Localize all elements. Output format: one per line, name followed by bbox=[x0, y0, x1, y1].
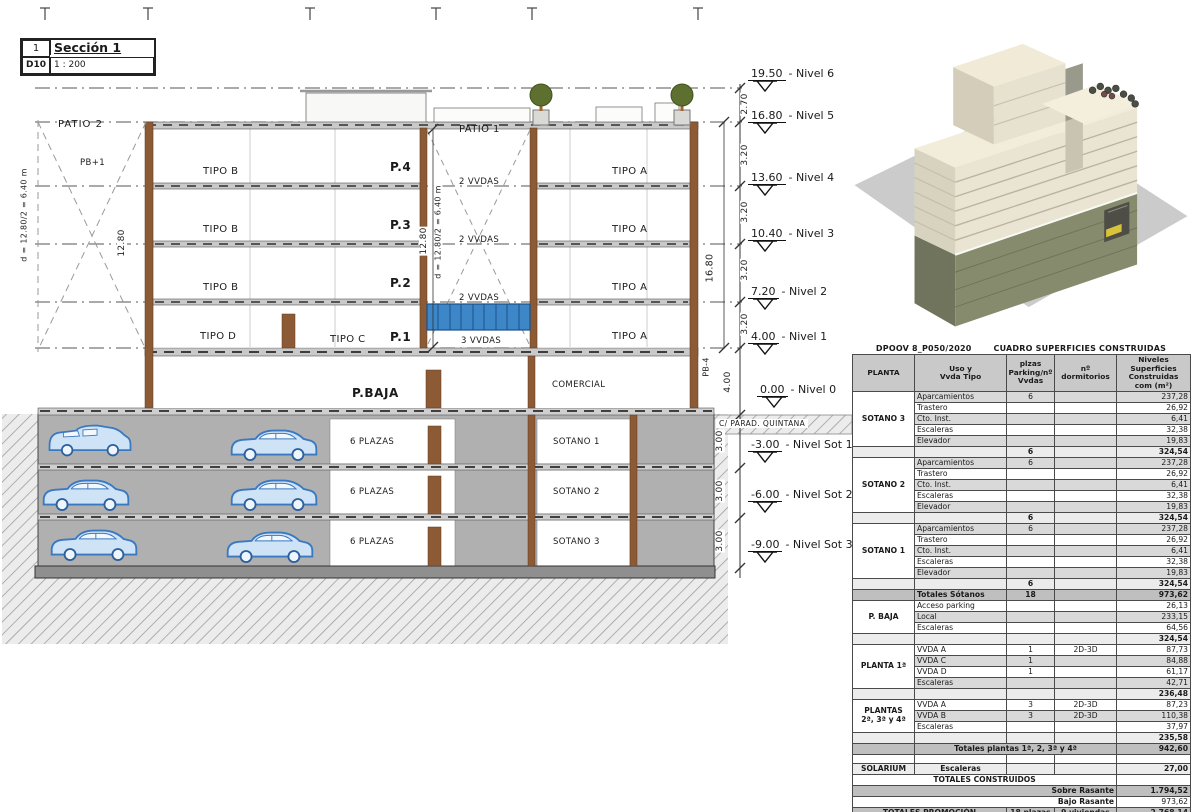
table-cell: Cto. Inst. bbox=[915, 480, 1007, 491]
table-cell: 84,88 bbox=[1117, 656, 1191, 667]
table-cell bbox=[853, 634, 915, 645]
table-cell bbox=[1007, 436, 1055, 447]
table-cell bbox=[853, 744, 915, 755]
table-title: CUADRO SUPERFICIES CONSTRUIDAS bbox=[994, 344, 1167, 353]
table-cell bbox=[1055, 491, 1117, 502]
benchmark-icon bbox=[752, 343, 778, 355]
pbaja-label: P.BAJA bbox=[352, 386, 399, 400]
level-marker: 4.00- Nivel 1 bbox=[748, 325, 827, 355]
table-cell: 324,54 bbox=[1117, 447, 1191, 458]
table-cell bbox=[1055, 590, 1117, 601]
table-cell: SOTANO 3 bbox=[853, 392, 915, 447]
table-cell: Escaleras bbox=[915, 491, 1007, 502]
table-cell: 6 bbox=[1007, 513, 1055, 524]
tipo-d-label: TIPO D bbox=[200, 331, 236, 342]
table-cell: Escaleras bbox=[915, 623, 1007, 634]
patio2-label: PATIO 2 bbox=[58, 119, 103, 130]
table-row: Totales plantas 1ª, 2, 3ª y 4ª942,60 bbox=[853, 744, 1191, 755]
tipo-a-label: TIPO A bbox=[612, 166, 647, 177]
table-cell bbox=[1007, 755, 1055, 764]
table-row bbox=[853, 755, 1191, 764]
table-cell: Aparcamientos bbox=[915, 524, 1007, 535]
comercial-label: COMERCIAL bbox=[552, 380, 605, 390]
column-header: PLANTA bbox=[853, 355, 915, 392]
table-row: Totales Sótanos18973,62 bbox=[853, 590, 1191, 601]
table-cell: 61,17 bbox=[1117, 667, 1191, 678]
dim-320: 3.20 bbox=[740, 200, 750, 223]
table-cell: Cto. Inst. bbox=[915, 414, 1007, 425]
level-marker: 19.50- Nivel 6 bbox=[748, 62, 834, 92]
table-cell: 3 bbox=[1007, 700, 1055, 711]
table-cell: 973,62 bbox=[1117, 590, 1191, 601]
table-cell: 110,38 bbox=[1117, 711, 1191, 722]
table-code: DPOOV 8_P050/2020 bbox=[876, 344, 972, 353]
dim-320: 3.20 bbox=[740, 258, 750, 281]
table-cell bbox=[1007, 502, 1055, 513]
table-cell: Escaleras bbox=[915, 425, 1007, 436]
table-cell: Acceso parking bbox=[915, 601, 1007, 612]
dim-d-mid: d = 12.80/2 = 6.40 m bbox=[434, 184, 443, 280]
table-cell bbox=[1055, 502, 1117, 513]
table-cell bbox=[1055, 733, 1117, 744]
table-cell: Totales plantas 1ª, 2, 3ª y 4ª bbox=[915, 744, 1117, 755]
table-cell: VVDA B bbox=[915, 711, 1007, 722]
table-row: SOLARIUMEscaleras27,00 bbox=[853, 764, 1191, 775]
table-cell bbox=[1055, 425, 1117, 436]
table-cell bbox=[915, 634, 1007, 645]
table-cell bbox=[1055, 513, 1117, 524]
dim-300: 3.00 bbox=[715, 529, 725, 552]
grid-ticks bbox=[40, 8, 703, 20]
level-marker: -6.00- Nivel Sot 2 bbox=[748, 483, 853, 513]
table-cell: TOTALES PROMOCIÓN bbox=[853, 808, 1007, 812]
table-row: 235,58 bbox=[853, 733, 1191, 744]
glazing-band bbox=[427, 304, 530, 330]
table-cell bbox=[1055, 634, 1117, 645]
level-marker: 13.60- Nivel 4 bbox=[748, 166, 834, 196]
table-cell: 42,71 bbox=[1117, 678, 1191, 689]
table-row: PLANTAS 2ª, 3ª y 4ªVVDA A32D-3D87,23 bbox=[853, 700, 1191, 711]
table-cell bbox=[1055, 458, 1117, 469]
p4-label: P.4 bbox=[390, 160, 411, 174]
p1-label: P.1 bbox=[390, 330, 411, 344]
level-marker: 0.00- Nivel 0 bbox=[757, 378, 836, 408]
table-cell: 2D-3D bbox=[1055, 711, 1117, 722]
table-cell: Aparcamientos bbox=[915, 392, 1007, 403]
table-cell bbox=[1007, 535, 1055, 546]
table-row: PLANTA 1ªVVDA A12D-3D87,73 bbox=[853, 645, 1191, 656]
table-cell: 1.794,52 bbox=[1117, 786, 1191, 797]
table-cell bbox=[1007, 733, 1055, 744]
penthouse bbox=[306, 93, 426, 122]
table-cell bbox=[1055, 447, 1117, 458]
table-cell bbox=[1055, 689, 1117, 700]
vvdas-label: 2 VVDAS bbox=[459, 293, 499, 303]
table-row: Bajo Rasante973,62 bbox=[853, 797, 1191, 808]
dim-300: 3.00 bbox=[715, 479, 725, 502]
table-cell bbox=[1055, 480, 1117, 491]
table-row: 324,54 bbox=[853, 634, 1191, 645]
benchmark-icon bbox=[761, 396, 787, 408]
table-cell bbox=[1055, 524, 1117, 535]
vvdas-label: 3 VVDAS bbox=[461, 336, 501, 346]
table-cell: 26,92 bbox=[1117, 535, 1191, 546]
level-marker: 16.80- Nivel 5 bbox=[748, 104, 834, 134]
table-cell: 18 plazas bbox=[1007, 808, 1055, 812]
table-cell bbox=[1055, 722, 1117, 733]
table-cell bbox=[1055, 436, 1117, 447]
table-cell bbox=[1007, 634, 1055, 645]
table-cell bbox=[1007, 623, 1055, 634]
table-cell: Local bbox=[915, 612, 1007, 623]
table-cell: 237,28 bbox=[1117, 392, 1191, 403]
dim-300: 3.00 bbox=[715, 429, 725, 452]
table-cell: 1 bbox=[1007, 667, 1055, 678]
table-cell bbox=[1117, 775, 1191, 786]
table-cell: Aparcamientos bbox=[915, 458, 1007, 469]
table-cell bbox=[915, 733, 1007, 744]
table-cell bbox=[1007, 568, 1055, 579]
p3-label: P.3 bbox=[390, 218, 411, 232]
table-cell: 2D-3D bbox=[1055, 700, 1117, 711]
table-cell: 19,83 bbox=[1117, 436, 1191, 447]
table-cell: 32,38 bbox=[1117, 557, 1191, 568]
table-cell: Cto. Inst. bbox=[915, 546, 1007, 557]
street-label: C/ PARAD. QUINTANA bbox=[716, 419, 808, 428]
level-marker: 10.40- Nivel 3 bbox=[748, 222, 834, 252]
column-header: plzas Parking/nº Vvdas bbox=[1007, 355, 1055, 392]
table-cell bbox=[1007, 612, 1055, 623]
pb1-label: PB+1 bbox=[80, 158, 105, 168]
table-cell: 324,54 bbox=[1117, 579, 1191, 590]
tipo-b-label: TIPO B bbox=[203, 282, 238, 293]
table-cell: VVDA D bbox=[915, 667, 1007, 678]
table-cell: 1 bbox=[1007, 645, 1055, 656]
areas-table-wrap: DPOOV 8_P050/2020 CUADRO SUPERFICIES CON… bbox=[852, 344, 1190, 812]
table-row: 6324,54 bbox=[853, 447, 1191, 458]
sotano1-label: SOTANO 1 bbox=[553, 437, 600, 447]
level-marker: -9.00- Nivel Sot 3 bbox=[748, 533, 853, 563]
roof-parapets bbox=[434, 103, 679, 122]
table-cell bbox=[853, 733, 915, 744]
table-cell: P. BAJA bbox=[853, 601, 915, 634]
table-cell bbox=[1055, 623, 1117, 634]
table-cell bbox=[1007, 601, 1055, 612]
table-cell: 26,92 bbox=[1117, 469, 1191, 480]
table-cell bbox=[1055, 568, 1117, 579]
table-row: 6324,54 bbox=[853, 579, 1191, 590]
drawing-scale: 1 : 200 bbox=[50, 57, 154, 74]
table-cell bbox=[853, 513, 915, 524]
table-cell: SOTANO 2 bbox=[853, 458, 915, 513]
table-row: TOTALES CONSTRUIDOS bbox=[853, 775, 1191, 786]
areas-table: PLANTAUso y Vvda Tipoplzas Parking/nº Vv… bbox=[852, 354, 1191, 812]
table-cell: PLANTAS 2ª, 3ª y 4ª bbox=[853, 700, 915, 733]
table-row: 236,48 bbox=[853, 689, 1191, 700]
benchmark-icon bbox=[752, 298, 778, 310]
tipo-a-label: TIPO A bbox=[612, 224, 647, 235]
table-cell bbox=[1007, 678, 1055, 689]
table-cell: 324,54 bbox=[1117, 634, 1191, 645]
table-cell bbox=[1007, 491, 1055, 502]
table-cell bbox=[853, 590, 915, 601]
table-cell: Elevador bbox=[915, 436, 1007, 447]
vvdas-label: 2 VVDAS bbox=[459, 177, 499, 187]
sotano2-label: SOTANO 2 bbox=[553, 487, 600, 497]
architectural-sheet: 1 Sección 1 D10 1 : 200 PATIO 2 PB+1 TIP… bbox=[0, 0, 1200, 812]
dim-1280: 12.80 bbox=[117, 228, 127, 257]
table-cell: 26,92 bbox=[1117, 403, 1191, 414]
table-row: TOTALES PROMOCIÓN18 plazas9 viviendas2.7… bbox=[853, 808, 1191, 812]
table-cell: 27,00 bbox=[1117, 764, 1191, 775]
column-header: nº dormitorios bbox=[1055, 355, 1117, 392]
table-cell bbox=[853, 447, 915, 458]
table-cell: TOTALES CONSTRUIDOS bbox=[853, 775, 1117, 786]
table-cell: Sobre Rasante bbox=[853, 786, 1117, 797]
sotano3-label: SOTANO 3 bbox=[553, 537, 600, 547]
ground-door bbox=[426, 370, 441, 408]
tipo-a-label: TIPO A bbox=[612, 282, 647, 293]
table-cell: 2.768,14 bbox=[1117, 808, 1191, 812]
benchmark-icon bbox=[752, 80, 778, 92]
table-cell bbox=[1007, 414, 1055, 425]
tipo-b-label: TIPO B bbox=[203, 166, 238, 177]
table-cell: SOLARIUM bbox=[853, 764, 915, 775]
section-number: 1 bbox=[22, 40, 50, 57]
table-cell: 6,41 bbox=[1117, 480, 1191, 491]
table-cell bbox=[915, 755, 1007, 764]
table-cell: Escaleras bbox=[915, 678, 1007, 689]
table-cell: VVDA C bbox=[915, 656, 1007, 667]
table-cell: 6 bbox=[1007, 458, 1055, 469]
level-marker: 7.20- Nivel 2 bbox=[748, 280, 827, 310]
table-cell: 973,62 bbox=[1117, 797, 1191, 808]
table-row: SOTANO 1Aparcamientos6237,28 bbox=[853, 524, 1191, 535]
table-cell bbox=[1007, 557, 1055, 568]
table-cell: 324,54 bbox=[1117, 513, 1191, 524]
table-cell bbox=[915, 513, 1007, 524]
table-cell: 6,41 bbox=[1117, 414, 1191, 425]
table-cell: SOTANO 1 bbox=[853, 524, 915, 579]
table-cell: 6,41 bbox=[1117, 546, 1191, 557]
sheet-code: D10 bbox=[22, 57, 50, 74]
plazas-label: 6 PLAZAS bbox=[350, 437, 394, 447]
table-row: P. BAJAAcceso parking26,13 bbox=[853, 601, 1191, 612]
table-cell: 3 bbox=[1007, 711, 1055, 722]
right-building bbox=[537, 128, 690, 348]
table-cell: 6 bbox=[1007, 579, 1055, 590]
table-cell bbox=[1055, 414, 1117, 425]
tipo-c-label: TIPO C bbox=[330, 334, 366, 345]
dim-pb4: PB-4 bbox=[702, 356, 711, 378]
table-cell: Escaleras bbox=[915, 764, 1007, 775]
table-cell: 26,13 bbox=[1117, 601, 1191, 612]
table-cell: 18 bbox=[1007, 590, 1055, 601]
tipo-b-label: TIPO B bbox=[203, 224, 238, 235]
table-cell: Trastero bbox=[915, 403, 1007, 414]
dim-1680: 16.80 bbox=[705, 253, 716, 284]
table-cell bbox=[1117, 755, 1191, 764]
p2-label: P.2 bbox=[390, 276, 411, 290]
table-cell: 64,56 bbox=[1117, 623, 1191, 634]
table-cell bbox=[1007, 546, 1055, 557]
table-cell bbox=[915, 579, 1007, 590]
table-cell: Elevador bbox=[915, 502, 1007, 513]
table-cell bbox=[915, 447, 1007, 458]
table-cell bbox=[1055, 601, 1117, 612]
table-cell bbox=[1055, 403, 1117, 414]
table-cell bbox=[1055, 557, 1117, 568]
table-cell bbox=[1055, 535, 1117, 546]
tipo-a-label: TIPO A bbox=[612, 331, 647, 342]
table-cell bbox=[1055, 546, 1117, 557]
table-cell: 2D-3D bbox=[1055, 645, 1117, 656]
table-cell bbox=[915, 689, 1007, 700]
table-cell: 235,58 bbox=[1117, 733, 1191, 744]
plazas-label: 6 PLAZAS bbox=[350, 487, 394, 497]
table-cell: 237,28 bbox=[1117, 524, 1191, 535]
table-cell bbox=[1007, 480, 1055, 491]
dim-400: 4.00 bbox=[723, 370, 733, 393]
table-cell bbox=[1055, 678, 1117, 689]
table-cell: 237,28 bbox=[1117, 458, 1191, 469]
title-block: 1 Sección 1 D10 1 : 200 bbox=[20, 38, 156, 76]
table-cell: Trastero bbox=[915, 469, 1007, 480]
table-cell: PLANTA 1ª bbox=[853, 645, 915, 689]
table-cell: VVDA A bbox=[915, 700, 1007, 711]
table-cell: Escaleras bbox=[915, 557, 1007, 568]
table-cell bbox=[1007, 469, 1055, 480]
ground-floor-rooms bbox=[152, 356, 690, 408]
table-cell bbox=[1055, 469, 1117, 480]
table-cell bbox=[1007, 689, 1055, 700]
table-cell bbox=[1055, 764, 1117, 775]
axonometric-render bbox=[845, 40, 1195, 340]
table-cell: 6 bbox=[1007, 447, 1055, 458]
table-cell: 6 bbox=[1007, 524, 1055, 535]
benchmark-icon bbox=[752, 451, 778, 463]
level-marker: -3.00- Nivel Sot 1 bbox=[748, 433, 853, 463]
benchmark-icon bbox=[752, 184, 778, 196]
table-row: 6324,54 bbox=[853, 513, 1191, 524]
table-header-row: PLANTAUso y Vvda Tipoplzas Parking/nº Vv… bbox=[853, 355, 1191, 392]
table-cell: 942,60 bbox=[1117, 744, 1191, 755]
table-cell: 87,23 bbox=[1117, 700, 1191, 711]
benchmark-icon bbox=[752, 501, 778, 513]
table-cell: VVDA A bbox=[915, 645, 1007, 656]
table-cell: Escaleras bbox=[915, 722, 1007, 733]
table-cell: 9 viviendas bbox=[1055, 808, 1117, 812]
benchmark-icon bbox=[752, 551, 778, 563]
column-header: Niveles Superficies Construidas com (m²) bbox=[1117, 355, 1191, 392]
benchmark-icon bbox=[752, 122, 778, 134]
patio1-label: PATIO 1 bbox=[459, 124, 500, 135]
table-row: Sobre Rasante1.794,52 bbox=[853, 786, 1191, 797]
table-cell bbox=[1007, 425, 1055, 436]
table-cell bbox=[1007, 722, 1055, 733]
table-cell: 19,83 bbox=[1117, 568, 1191, 579]
table-cell bbox=[1055, 755, 1117, 764]
plazas-label: 6 PLAZAS bbox=[350, 537, 394, 547]
section-drawing bbox=[0, 0, 860, 700]
table-cell bbox=[1055, 392, 1117, 403]
table-cell: 19,83 bbox=[1117, 502, 1191, 513]
table-cell: Bajo Rasante bbox=[853, 797, 1117, 808]
table-cell: 1 bbox=[1007, 656, 1055, 667]
table-cell bbox=[1055, 612, 1117, 623]
table-cell: 32,38 bbox=[1117, 425, 1191, 436]
patio2-braces bbox=[38, 120, 146, 352]
section-title: Sección 1 bbox=[50, 40, 154, 55]
table-cell: 236,48 bbox=[1117, 689, 1191, 700]
table-cell bbox=[1055, 579, 1117, 590]
dim-d-left: d = 12.80/2 = 6.40 m bbox=[20, 167, 29, 263]
table-cell: 233,15 bbox=[1117, 612, 1191, 623]
table-cell bbox=[853, 579, 915, 590]
dim-1280: 12.80 bbox=[419, 226, 429, 255]
table-cell: Trastero bbox=[915, 535, 1007, 546]
table-cell: Totales Sótanos bbox=[915, 590, 1007, 601]
table-row: SOTANO 2Aparcamientos6237,28 bbox=[853, 458, 1191, 469]
table-cell bbox=[1007, 764, 1055, 775]
benchmark-icon bbox=[752, 240, 778, 252]
table-cell bbox=[853, 755, 915, 764]
table-cell: Elevador bbox=[915, 568, 1007, 579]
column-header: Uso y Vvda Tipo bbox=[915, 355, 1007, 392]
table-row: SOTANO 3Aparcamientos6237,28 bbox=[853, 392, 1191, 403]
table-cell: 37,97 bbox=[1117, 722, 1191, 733]
table-cell: 6 bbox=[1007, 392, 1055, 403]
table-cell bbox=[853, 689, 915, 700]
table-cell bbox=[1007, 403, 1055, 414]
dim-320: 3.20 bbox=[740, 143, 750, 166]
table-cell: 32,38 bbox=[1117, 491, 1191, 502]
table-cell bbox=[1055, 667, 1117, 678]
table-cell bbox=[1055, 656, 1117, 667]
vvdas-label: 2 VVDAS bbox=[459, 235, 499, 245]
table-cell: 87,73 bbox=[1117, 645, 1191, 656]
